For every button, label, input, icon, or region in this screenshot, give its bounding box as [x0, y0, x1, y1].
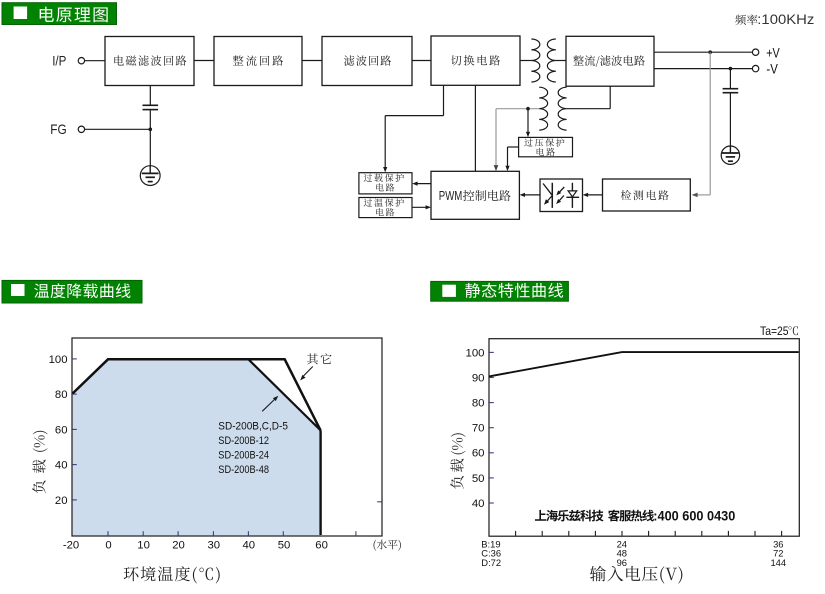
svg-text:60: 60	[55, 424, 68, 436]
svg-text:144: 144	[770, 557, 786, 568]
svg-text:+V: +V	[766, 46, 780, 61]
svg-text:30: 30	[208, 540, 221, 552]
svg-text:20: 20	[172, 540, 185, 552]
svg-text:PWM: PWM	[439, 188, 463, 203]
svg-text:-20: -20	[63, 540, 79, 552]
svg-text:-V: -V	[766, 61, 777, 76]
svg-text:96: 96	[617, 557, 627, 568]
svg-text:40: 40	[472, 498, 485, 510]
svg-text:100: 100	[49, 354, 68, 366]
svg-text:SD-200B-12: SD-200B-12	[218, 435, 269, 447]
svg-text:0: 0	[105, 540, 111, 552]
svg-text:90: 90	[472, 372, 485, 384]
svg-text:I/P: I/P	[52, 53, 66, 68]
svg-text:40: 40	[243, 540, 256, 552]
svg-text:FG: FG	[50, 121, 66, 137]
svg-text:40: 40	[55, 460, 68, 472]
svg-text:SD-200B-24: SD-200B-24	[218, 450, 269, 462]
svg-text::100KHz: :100KHz	[757, 12, 814, 27]
svg-text:80: 80	[55, 389, 68, 401]
svg-text:50: 50	[472, 473, 485, 485]
svg-text:70: 70	[472, 423, 485, 435]
svg-text:60: 60	[315, 540, 328, 552]
svg-text:SD-200B-48: SD-200B-48	[218, 464, 269, 476]
svg-text:100: 100	[465, 347, 484, 359]
svg-text:60: 60	[472, 448, 485, 460]
svg-text:D:72: D:72	[481, 557, 501, 568]
svg-text:10: 10	[137, 540, 150, 552]
svg-text:Ta=25: Ta=25	[760, 324, 789, 338]
svg-text:20: 20	[55, 495, 68, 507]
svg-text:SD-200B,C,D-5: SD-200B,C,D-5	[218, 421, 288, 433]
svg-text:50: 50	[278, 540, 291, 552]
svg-text::400 600 0430: :400 600 0430	[653, 508, 735, 523]
svg-text:80: 80	[472, 398, 485, 410]
